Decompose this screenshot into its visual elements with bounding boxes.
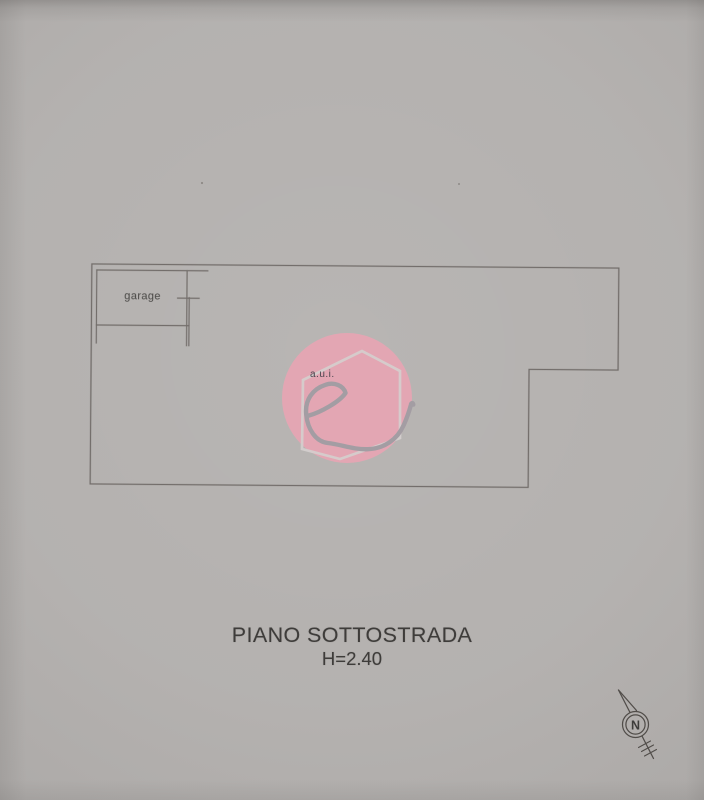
garage-label: garage [124, 290, 161, 302]
north-compass: N [619, 690, 657, 759]
dust-specks [201, 182, 460, 185]
plan-caption: PIANO SOTTOSTRADA H=2.40 [0, 623, 704, 669]
dust-speck [201, 182, 203, 184]
watermark-caption: a.u.i. [310, 369, 335, 380]
garage-wall-right [187, 271, 188, 346]
garage-wall-bottom [96, 325, 188, 326]
garage-wall-left [96, 270, 97, 343]
compass-fletching [639, 741, 657, 756]
paper-sheet: a.u.i. garage N PIANO S [0, 0, 704, 800]
garage-wall-top [97, 270, 208, 271]
plan-height-label: H=2.40 [0, 648, 704, 669]
compass-label: N [631, 719, 640, 733]
watermark-stamp: a.u.i. [282, 333, 413, 463]
dust-speck [458, 183, 460, 185]
floor-plan-drawing: a.u.i. garage N [0, 0, 704, 800]
plan-title: PIANO SOTTOSTRADA [0, 623, 704, 648]
